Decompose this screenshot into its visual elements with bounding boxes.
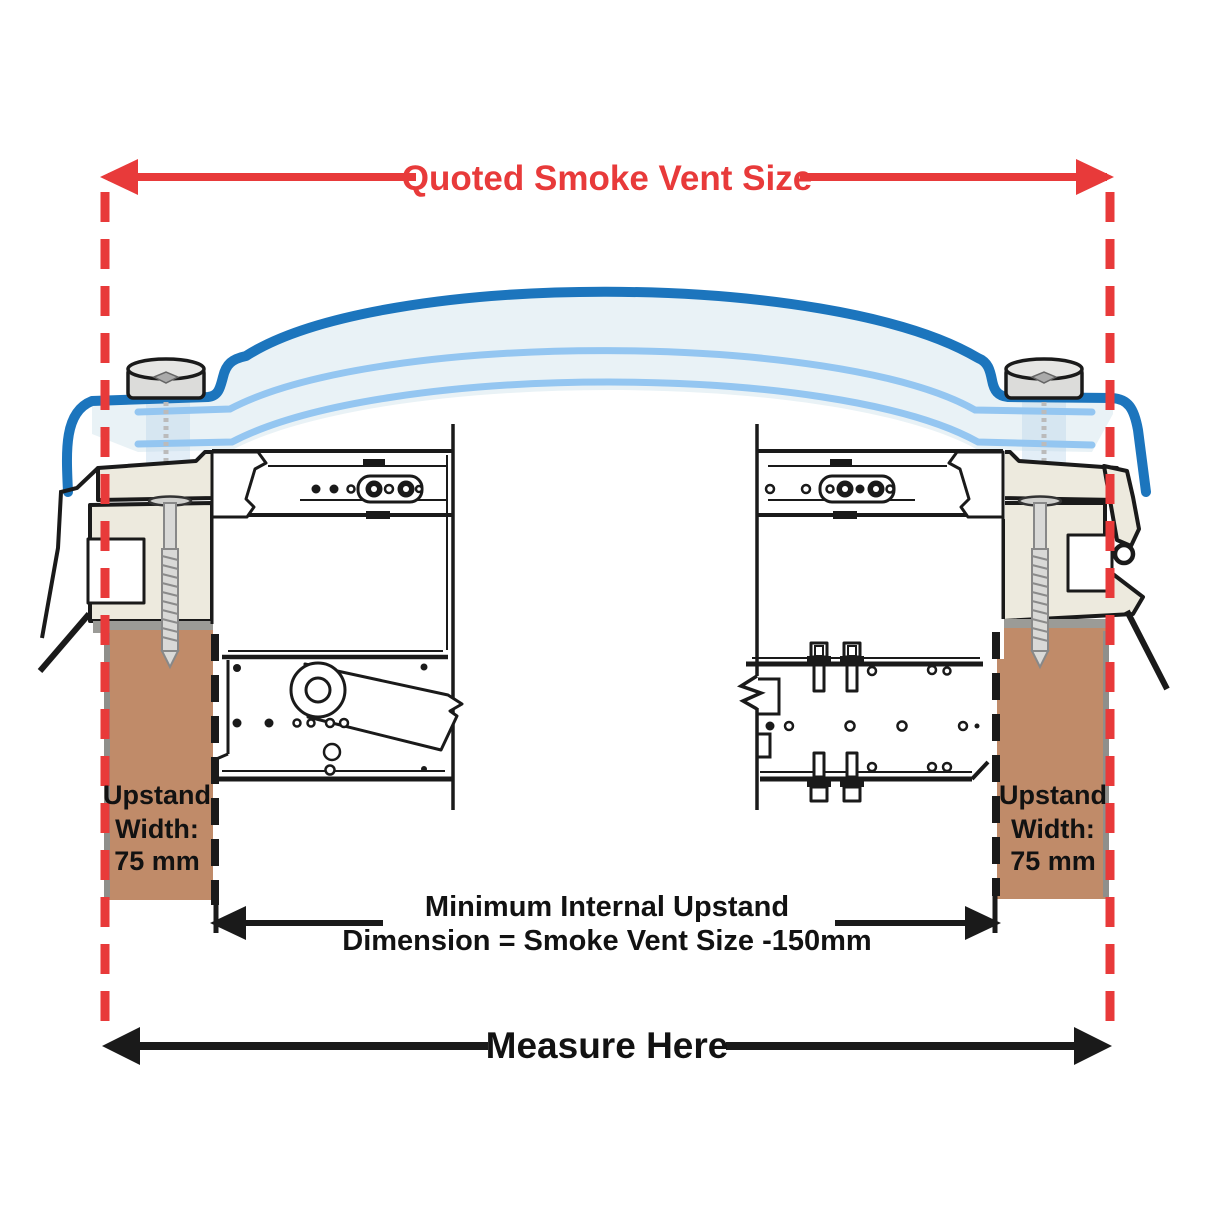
measure-here-dimension: Measure Here — [102, 1025, 1112, 1066]
quoted-size-label: Quoted Smoke Vent Size — [402, 159, 812, 198]
hinge-pin-right — [1115, 545, 1133, 563]
upstand-label-line1: Upstand — [999, 780, 1107, 810]
upstand-label-line3: 75 mm — [1010, 846, 1096, 876]
kerb-notch-left — [88, 539, 144, 603]
roof-line-left — [40, 614, 89, 671]
arrow-right-icon — [1074, 1027, 1112, 1065]
upstand-label-line1: Upstand — [103, 780, 211, 810]
upstand-label-line2: Width: — [115, 814, 199, 844]
measure-here-label: Measure Here — [486, 1025, 729, 1066]
internal-dimension-label-line1: Minimum Internal Upstand — [425, 891, 789, 923]
roof-line-right — [1127, 611, 1167, 689]
upstand-label-line2: Width: — [1011, 814, 1095, 844]
vent-mechanism-right — [741, 424, 1005, 810]
vent-mechanism-left — [212, 424, 462, 810]
dome-fixing-cap-left — [128, 359, 204, 398]
arrow-left-icon — [100, 159, 138, 195]
upstand-width-label-left: Upstand Width: 75 mm — [103, 780, 211, 876]
arrow-left-icon — [102, 1027, 140, 1065]
glazing-fill — [92, 295, 1113, 452]
internal-dimension-label-line2: Dimension = Smoke Vent Size -150mm — [342, 925, 871, 957]
upstand-label-line3: 75 mm — [114, 846, 200, 876]
pivot-hole — [306, 678, 330, 702]
smoke-vent-cross-section-diagram: Minimum Internal Upstand Dimension = Smo… — [0, 0, 1214, 1214]
kerb-notch-right — [1068, 535, 1112, 591]
arrow-right-icon — [1076, 159, 1114, 195]
dome-fixing-cap-right — [1006, 359, 1082, 398]
upstand-width-label-right: Upstand Width: 75 mm — [999, 780, 1107, 876]
